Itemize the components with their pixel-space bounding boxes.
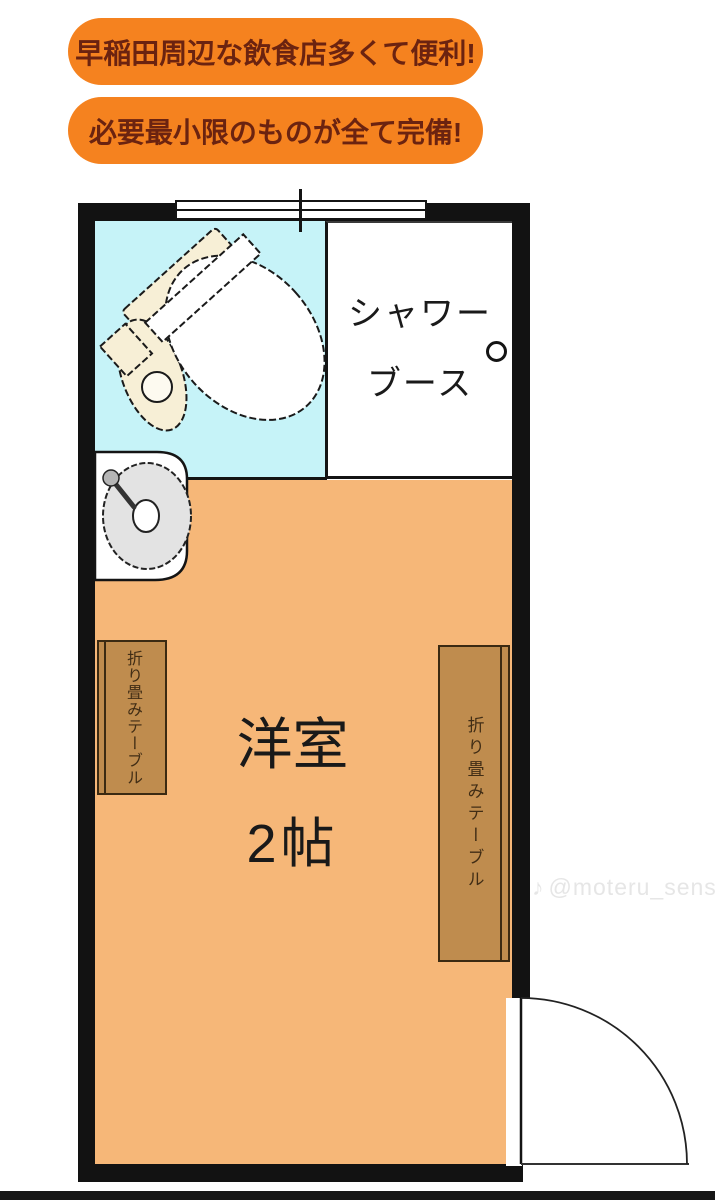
- folding-table-left: 折り畳みテーブル: [97, 640, 167, 795]
- folding-table-right-label: 折り畳みテーブル: [462, 716, 487, 892]
- floorplan-screenshot: 早稲田周辺な飲食店多くて便利! 必要最小限のものが全て完備! シャワー ブース …: [0, 0, 715, 1200]
- room-label: 洋室 2帖: [190, 700, 395, 878]
- shower-booth-label-line1: シャワー: [348, 295, 492, 333]
- shower-drain-icon: [486, 341, 507, 362]
- callout-bubble-1: 早稲田周辺な飲食店多くて便利!: [68, 18, 483, 85]
- music-note-icon: ♪: [532, 874, 545, 900]
- callout-bubble-2: 必要最小限のものが全て完備!: [68, 97, 483, 164]
- shower-booth: シャワー ブース: [325, 221, 512, 479]
- callout-text-1: 早稲田周辺な飲食店多くて便利!: [75, 32, 476, 72]
- window-center-tick: [299, 189, 302, 232]
- watermark-handle: @moteru_sensei: [549, 874, 715, 900]
- table-fold-edge: [500, 647, 502, 960]
- wall-left: [78, 203, 95, 1182]
- shower-booth-label-line2: ブース: [367, 365, 473, 403]
- table-fold-edge: [104, 642, 106, 793]
- room-name: 洋室: [237, 700, 349, 781]
- area-divider-line: [95, 477, 327, 480]
- toilet-area-floor: [95, 221, 325, 479]
- wall-right: [512, 203, 530, 998]
- door-swing-arc: [521, 998, 687, 1164]
- room-size: 2帖: [246, 799, 338, 878]
- callout-text-2: 必要最小限のものが全て完備!: [89, 111, 462, 151]
- bottom-letterbox-bar: [0, 1191, 715, 1200]
- entry-door: [506, 998, 689, 1166]
- wall-bottom: [78, 1164, 523, 1182]
- watermark: ♪@moteru_sensei: [532, 874, 715, 901]
- folding-table-right: 折り畳みテーブル: [438, 645, 510, 962]
- folding-table-left-label: 折り畳みテーブル: [120, 650, 144, 786]
